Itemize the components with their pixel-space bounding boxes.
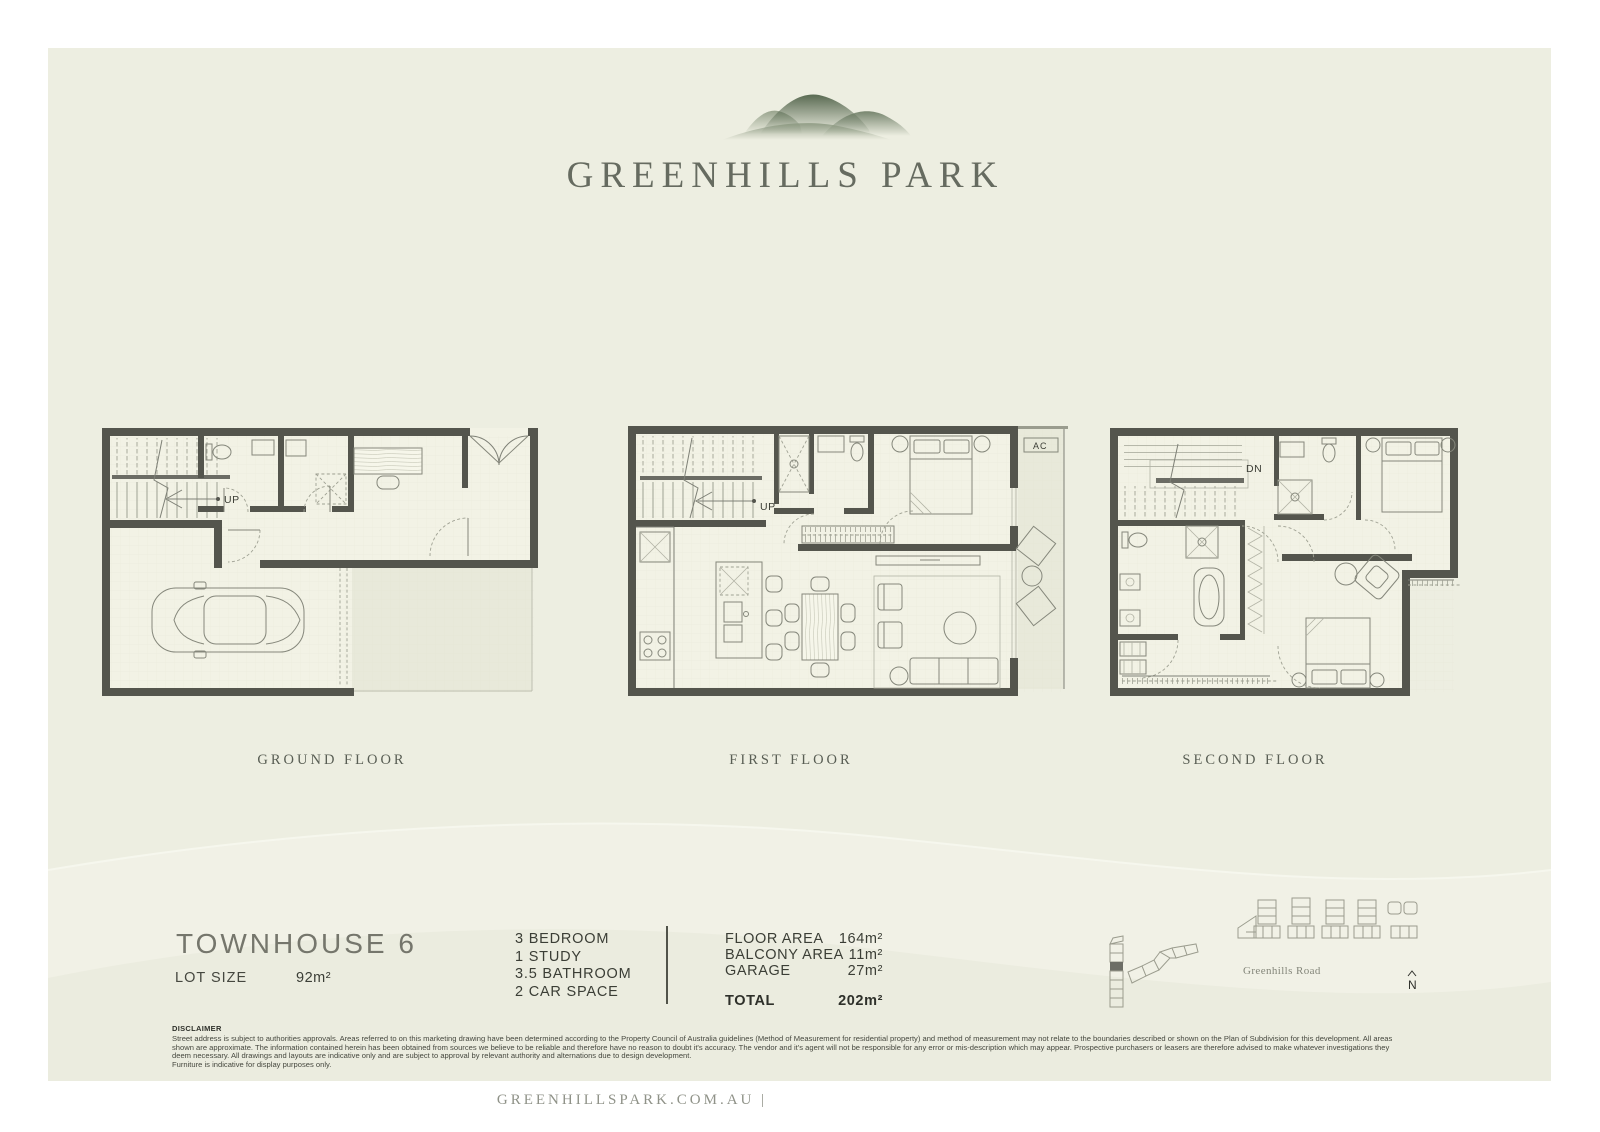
stair-direction-label: DN xyxy=(1246,463,1262,475)
road-label: Greenhills Road xyxy=(1243,965,1321,977)
stair-direction-label: UP xyxy=(224,494,240,506)
ground-floor-plan: UP xyxy=(102,428,538,696)
feature-bedrooms: 3 BEDROOM xyxy=(515,931,632,949)
first-floor-plan: UP xyxy=(628,426,1068,698)
svg-text:AC: AC xyxy=(1033,441,1048,451)
logo-title: GREENHILLS PARK xyxy=(34,154,1537,197)
logo-hills-icon xyxy=(716,82,936,146)
footer-website: GREENHILLSPARK.COM.AU | xyxy=(497,1092,767,1109)
highlighted-lot xyxy=(1110,962,1123,971)
stair-direction-label: UP xyxy=(760,501,776,513)
site-plan: Greenhills Road N xyxy=(1088,886,1420,1016)
ground-floor-label: GROUND FLOOR xyxy=(257,752,406,769)
lot-size-value: 92m² xyxy=(296,970,331,986)
upper-lot-groups xyxy=(1238,898,1417,938)
area-row-balcony: BALCONY AREA 11m² xyxy=(725,947,883,963)
area-label: BALCONY AREA xyxy=(725,947,844,963)
feature-car-spaces: 2 CAR SPACE xyxy=(515,984,632,1002)
area-row-floor: FLOOR AREA 164m² xyxy=(725,931,883,947)
staircase xyxy=(640,436,762,518)
total-value: 202m² xyxy=(838,993,883,1009)
north-indicator: N xyxy=(1408,971,1417,992)
page-title: TOWNHOUSE 6 xyxy=(176,928,417,960)
content-area: GREENHILLS PARK UP xyxy=(48,48,1551,1081)
feature-study: 1 STUDY xyxy=(515,949,632,967)
disclaimer-heading: DISCLAIMER xyxy=(172,1024,1394,1033)
logo: GREENHILLS PARK xyxy=(48,82,1551,197)
second-floor-plan: DN xyxy=(1110,428,1466,696)
window-hatch xyxy=(1408,580,1462,587)
area-table: FLOOR AREA 164m² BALCONY AREA 11m² GARAG… xyxy=(725,931,883,1009)
lot-size-row: LOT SIZE 92m² xyxy=(175,970,247,986)
first-floor-label: FIRST FLOOR xyxy=(729,752,852,769)
area-label: FLOOR AREA xyxy=(725,931,824,947)
lot-size-label: LOT SIZE xyxy=(175,970,247,986)
north-label: N xyxy=(1408,978,1417,992)
disclaimer-note: Furniture is indicative for display purp… xyxy=(172,1061,1394,1070)
disclaimer-body: Street address is subject to authorities… xyxy=(172,1035,1394,1061)
brochure-page: GREENHILLS PARK UP xyxy=(0,0,1600,1132)
second-floor-label: SECOND FLOOR xyxy=(1182,752,1327,769)
area-label: GARAGE xyxy=(725,963,791,979)
site-lots xyxy=(1110,898,1417,1007)
feature-list: 3 BEDROOM 1 STUDY 3.5 BATHROOM 2 CAR SPA… xyxy=(515,931,632,1001)
wardrobe xyxy=(802,526,894,543)
vertical-divider xyxy=(666,926,668,1004)
area-row-garage: GARAGE 27m² xyxy=(725,963,883,979)
disclaimer: DISCLAIMER Street address is subject to … xyxy=(172,1024,1394,1069)
area-value: 164m² xyxy=(839,931,883,947)
area-row-total: TOTAL 202m² xyxy=(725,993,883,1009)
total-label: TOTAL xyxy=(725,993,775,1009)
area-value: 27m² xyxy=(848,963,883,979)
feature-bathrooms: 3.5 BATHROOM xyxy=(515,966,632,984)
area-value: 11m² xyxy=(849,947,883,963)
